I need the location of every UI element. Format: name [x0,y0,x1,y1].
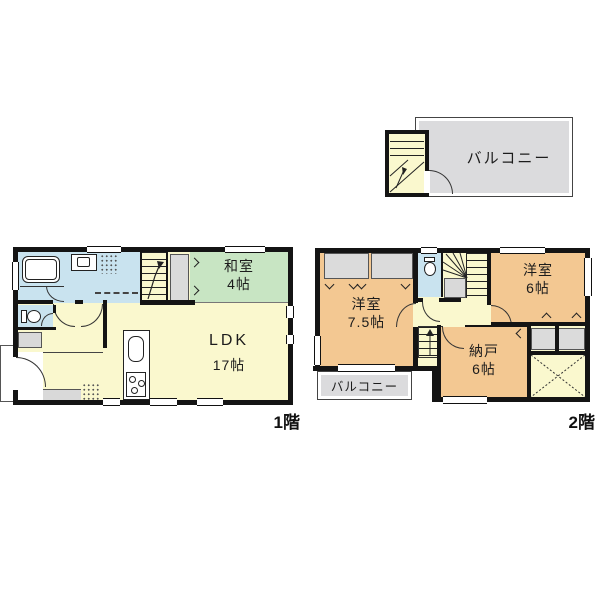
stairs-divider [466,253,467,298]
closet [371,253,413,279]
ldk-name: LDK [183,331,275,351]
stair-storage [444,278,466,298]
window [584,258,592,296]
floor1-label: 1階 [250,408,300,433]
washitsu-ldk-boundary [190,302,288,303]
yoshitsu-6-name: 洋室 [491,262,585,280]
window [443,396,487,404]
entry-step [43,389,81,400]
floor2-balcony-floor: バルコニー [321,375,408,396]
bathtub-inner [25,259,57,280]
nando-name: 納戸 [441,343,527,361]
kitchen-sink-icon [128,336,144,362]
washing-machine-drum [77,257,90,267]
wall [140,300,195,305]
floor2-stairs-winder [443,253,467,278]
floor2-label: 2階 [545,408,595,433]
window [286,335,294,344]
roof-balcony-label: バルコニー [437,147,552,168]
floor2-balcony-label: バルコニー [331,376,398,395]
ldk-size: 17帖 [183,357,275,375]
ldk-label: LDK 17帖 [183,331,275,375]
closet [324,253,369,279]
floor-mat [82,383,100,400]
wall [439,298,461,302]
floor1-stairs-arrow [140,252,168,303]
wall [18,327,56,330]
wall [53,305,56,313]
genkan-edge [43,352,103,353]
stove-burner [131,387,138,394]
stove-burner [129,376,136,383]
window [225,246,265,253]
window [87,246,121,253]
window [338,364,395,372]
vanity-counter [95,292,138,294]
wall [465,325,527,327]
toilet-icon [424,262,436,276]
washer-pan [100,254,117,274]
wall [103,300,107,348]
wall [555,326,559,351]
washitsu-label: 和室 4帖 [190,258,288,293]
window [197,398,223,406]
roof-stairs-turn [390,158,424,192]
washitsu-size: 4帖 [190,276,288,294]
nando-size: 6帖 [441,361,527,379]
yoshitsu-7_5-name: 洋室 [320,296,413,314]
wall [18,300,53,304]
stove-burner [138,380,145,387]
x-closet-mark [531,355,585,397]
oshiire-closet [170,254,189,302]
floor2-balcony: バルコニー [317,371,412,400]
shoe-cabinet [18,332,42,348]
yoshitsu-6-size: 6帖 [491,280,585,298]
window [286,306,294,318]
washitsu-name: 和室 [190,258,288,276]
floor2-stairs-treads [467,253,487,298]
window [12,262,19,290]
roof-stairs [390,141,424,158]
floorplan-canvas: バルコニー 和室 4帖 [0,0,600,599]
window [150,398,177,406]
nando-label: 納戸 6帖 [441,343,527,378]
yoshitsu-6-label: 洋室 6帖 [491,262,585,297]
window [500,247,545,254]
toilet-icon [27,310,41,323]
window [421,247,437,254]
window [103,398,120,406]
window [314,336,321,365]
